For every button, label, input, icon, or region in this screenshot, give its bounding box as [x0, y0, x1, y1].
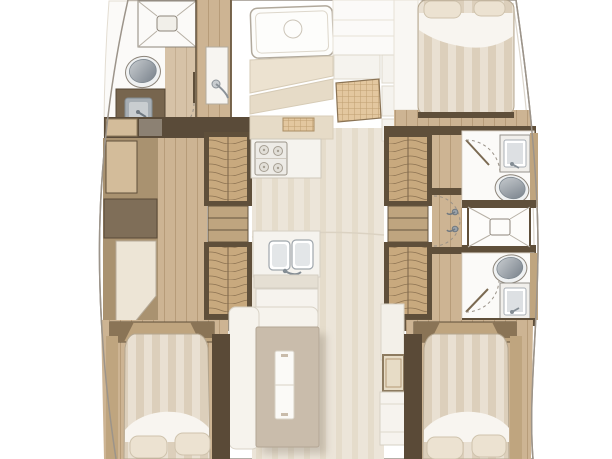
sink-vanity [500, 283, 530, 320]
galley-sink-unit [253, 231, 320, 314]
bed-post [212, 334, 230, 459]
pillow [474, 1, 505, 16]
forward-head-door [206, 47, 228, 104]
sink-vanity [500, 135, 530, 172]
corridor-trim-1 [428, 188, 466, 195]
port-aft-cabin [101, 320, 230, 459]
shower-drain [490, 219, 510, 235]
shelf-unit-starboard [388, 206, 428, 242]
port-corridor [103, 117, 252, 343]
corridor-trim-2 [428, 247, 466, 254]
galley-shelf-rattan [283, 118, 314, 131]
framed-panel [383, 355, 404, 391]
overhead-hatch [250, 6, 334, 59]
bed-post [404, 334, 422, 459]
starboard-forward-head [462, 131, 538, 207]
pillow [427, 437, 463, 459]
floor-plan [0, 0, 612, 459]
salon-cabinet-upper [381, 304, 404, 360]
port-corridor-floor [158, 138, 207, 343]
salon-cabinet-lower [380, 392, 407, 445]
rattan-panel [336, 79, 381, 122]
shared-shower [462, 200, 536, 253]
shower-forward [138, 1, 196, 47]
double-bed-forward [418, 0, 514, 118]
pillow [424, 1, 461, 18]
counter-ledge [254, 275, 318, 288]
bed-footboard [418, 112, 514, 118]
port-locker-dark [104, 199, 157, 238]
floor-plan-drawing [0, 0, 612, 459]
pillow [472, 435, 506, 457]
galley-counter-upper [334, 55, 380, 79]
starboard-aft-cabin [404, 320, 533, 459]
wardrobe-strip [394, 0, 418, 110]
shower-drain [157, 16, 177, 31]
shelf-unit-port [208, 206, 248, 242]
louver-locker-starboard-forward [384, 132, 432, 206]
pillow [175, 433, 210, 455]
bench-seat [229, 307, 259, 449]
starboard-aft-head [462, 252, 538, 326]
port-wardrobe-panel [106, 141, 137, 193]
stove-cooktop [251, 139, 321, 178]
hull-rail [510, 336, 522, 459]
louver-locker-port-forward [204, 132, 252, 206]
pillow [130, 436, 167, 458]
table-runner [275, 351, 294, 419]
